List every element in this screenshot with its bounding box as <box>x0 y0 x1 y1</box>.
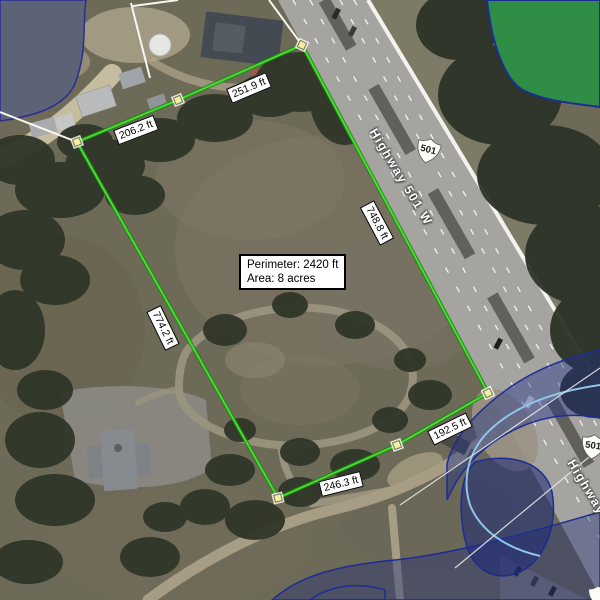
route-shield-partial <box>586 584 600 600</box>
svg-text:501: 501 <box>585 439 600 452</box>
route-501-shield-south: 501 <box>576 430 600 464</box>
perimeter-value: Perimeter: 2420 ft <box>247 258 338 272</box>
aerial-map-canvas[interactable]: 206.2 ft 251.9 ft 748.8 ft 192.5 ft 246.… <box>0 0 600 600</box>
area-value: Area: 8 acres <box>247 272 338 286</box>
measurement-summary-box: Perimeter: 2420 ft Area: 8 acres <box>239 254 346 290</box>
aerial-basemap <box>0 0 600 600</box>
